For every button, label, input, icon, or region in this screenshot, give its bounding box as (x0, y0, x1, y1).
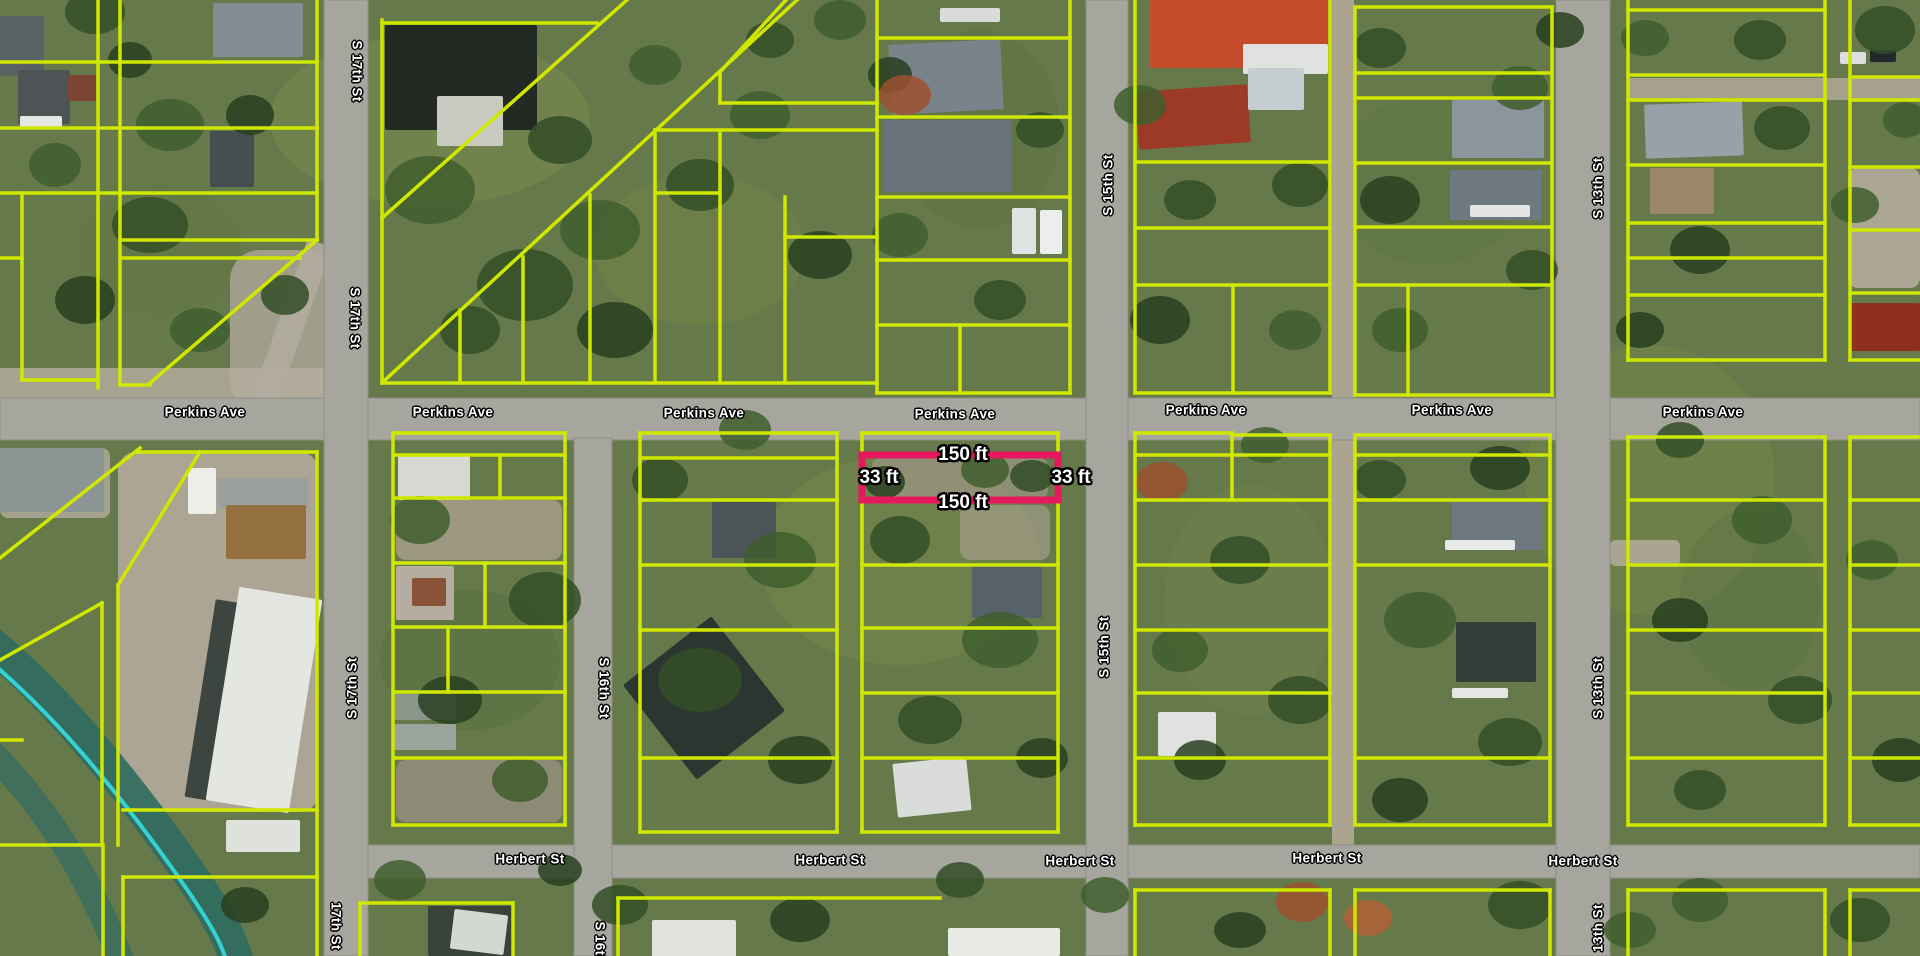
satellite-parcel-map[interactable]: Perkins AvePerkins AvePerkins AvePerkins… (0, 0, 1920, 956)
map-canvas (0, 0, 1920, 956)
parcel-boundary-line (0, 603, 102, 660)
road-s-16th-st (574, 438, 612, 956)
road-s-13th-st (1556, 0, 1610, 956)
road-s-15th-st (1086, 0, 1128, 956)
road-s-17th-st (324, 0, 368, 956)
